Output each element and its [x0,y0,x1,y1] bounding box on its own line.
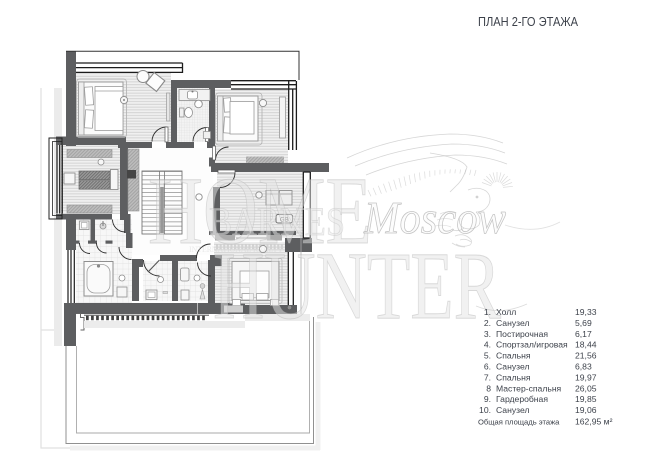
svg-text:7.: 7. [484,372,491,382]
svg-text:Постирочная: Постирочная [496,329,548,339]
svg-text:8: 8 [486,383,491,393]
svg-text:6.: 6. [484,362,491,372]
svg-text:19,06: 19,06 [575,405,597,415]
svg-text:Мастер-спальня: Мастер-спальня [496,383,562,393]
svg-text:Спортзал/игровая: Спортзал/игровая [496,340,568,350]
svg-text:6,83: 6,83 [575,362,592,372]
svg-text:4.: 4. [484,340,491,350]
svg-text:Общая площадь этажа: Общая площадь этажа [478,418,560,427]
svg-text:19,97: 19,97 [575,372,597,382]
svg-text:ПЛАН 2-ГО ЭТАЖА: ПЛАН 2-ГО ЭТАЖА [478,15,579,29]
svg-text:3.: 3. [484,329,491,339]
svg-text:Холл: Холл [496,307,516,317]
svg-text:21,56: 21,56 [575,351,597,361]
svg-text:BARNES: BARNES [209,199,345,244]
svg-text:26,05: 26,05 [575,383,597,393]
svg-text:INTERNATIONAL REALTY: INTERNATIONAL REALTY [189,245,283,254]
svg-text:9.: 9. [484,394,491,404]
svg-text:Спальня: Спальня [496,372,531,382]
svg-text:Санузел: Санузел [496,405,529,415]
svg-text:Moscow: Moscow [363,192,506,243]
svg-text:5.: 5. [484,351,491,361]
svg-text:10.: 10. [479,405,491,415]
svg-text:19,33: 19,33 [575,307,597,317]
svg-text:6,17: 6,17 [575,329,592,339]
svg-text:Гардеробная: Гардеробная [496,394,548,404]
svg-text:162,95 м²: 162,95 м² [575,417,613,427]
svg-text:5,69: 5,69 [575,318,592,328]
svg-text:18,44: 18,44 [575,340,597,350]
svg-text:19,85: 19,85 [575,394,597,404]
svg-text:Спальня: Спальня [496,351,531,361]
svg-text:1.: 1. [484,307,491,317]
svg-text:Санузел: Санузел [496,318,529,328]
svg-text:2.: 2. [484,318,491,328]
svg-text:Санузел: Санузел [496,362,529,372]
